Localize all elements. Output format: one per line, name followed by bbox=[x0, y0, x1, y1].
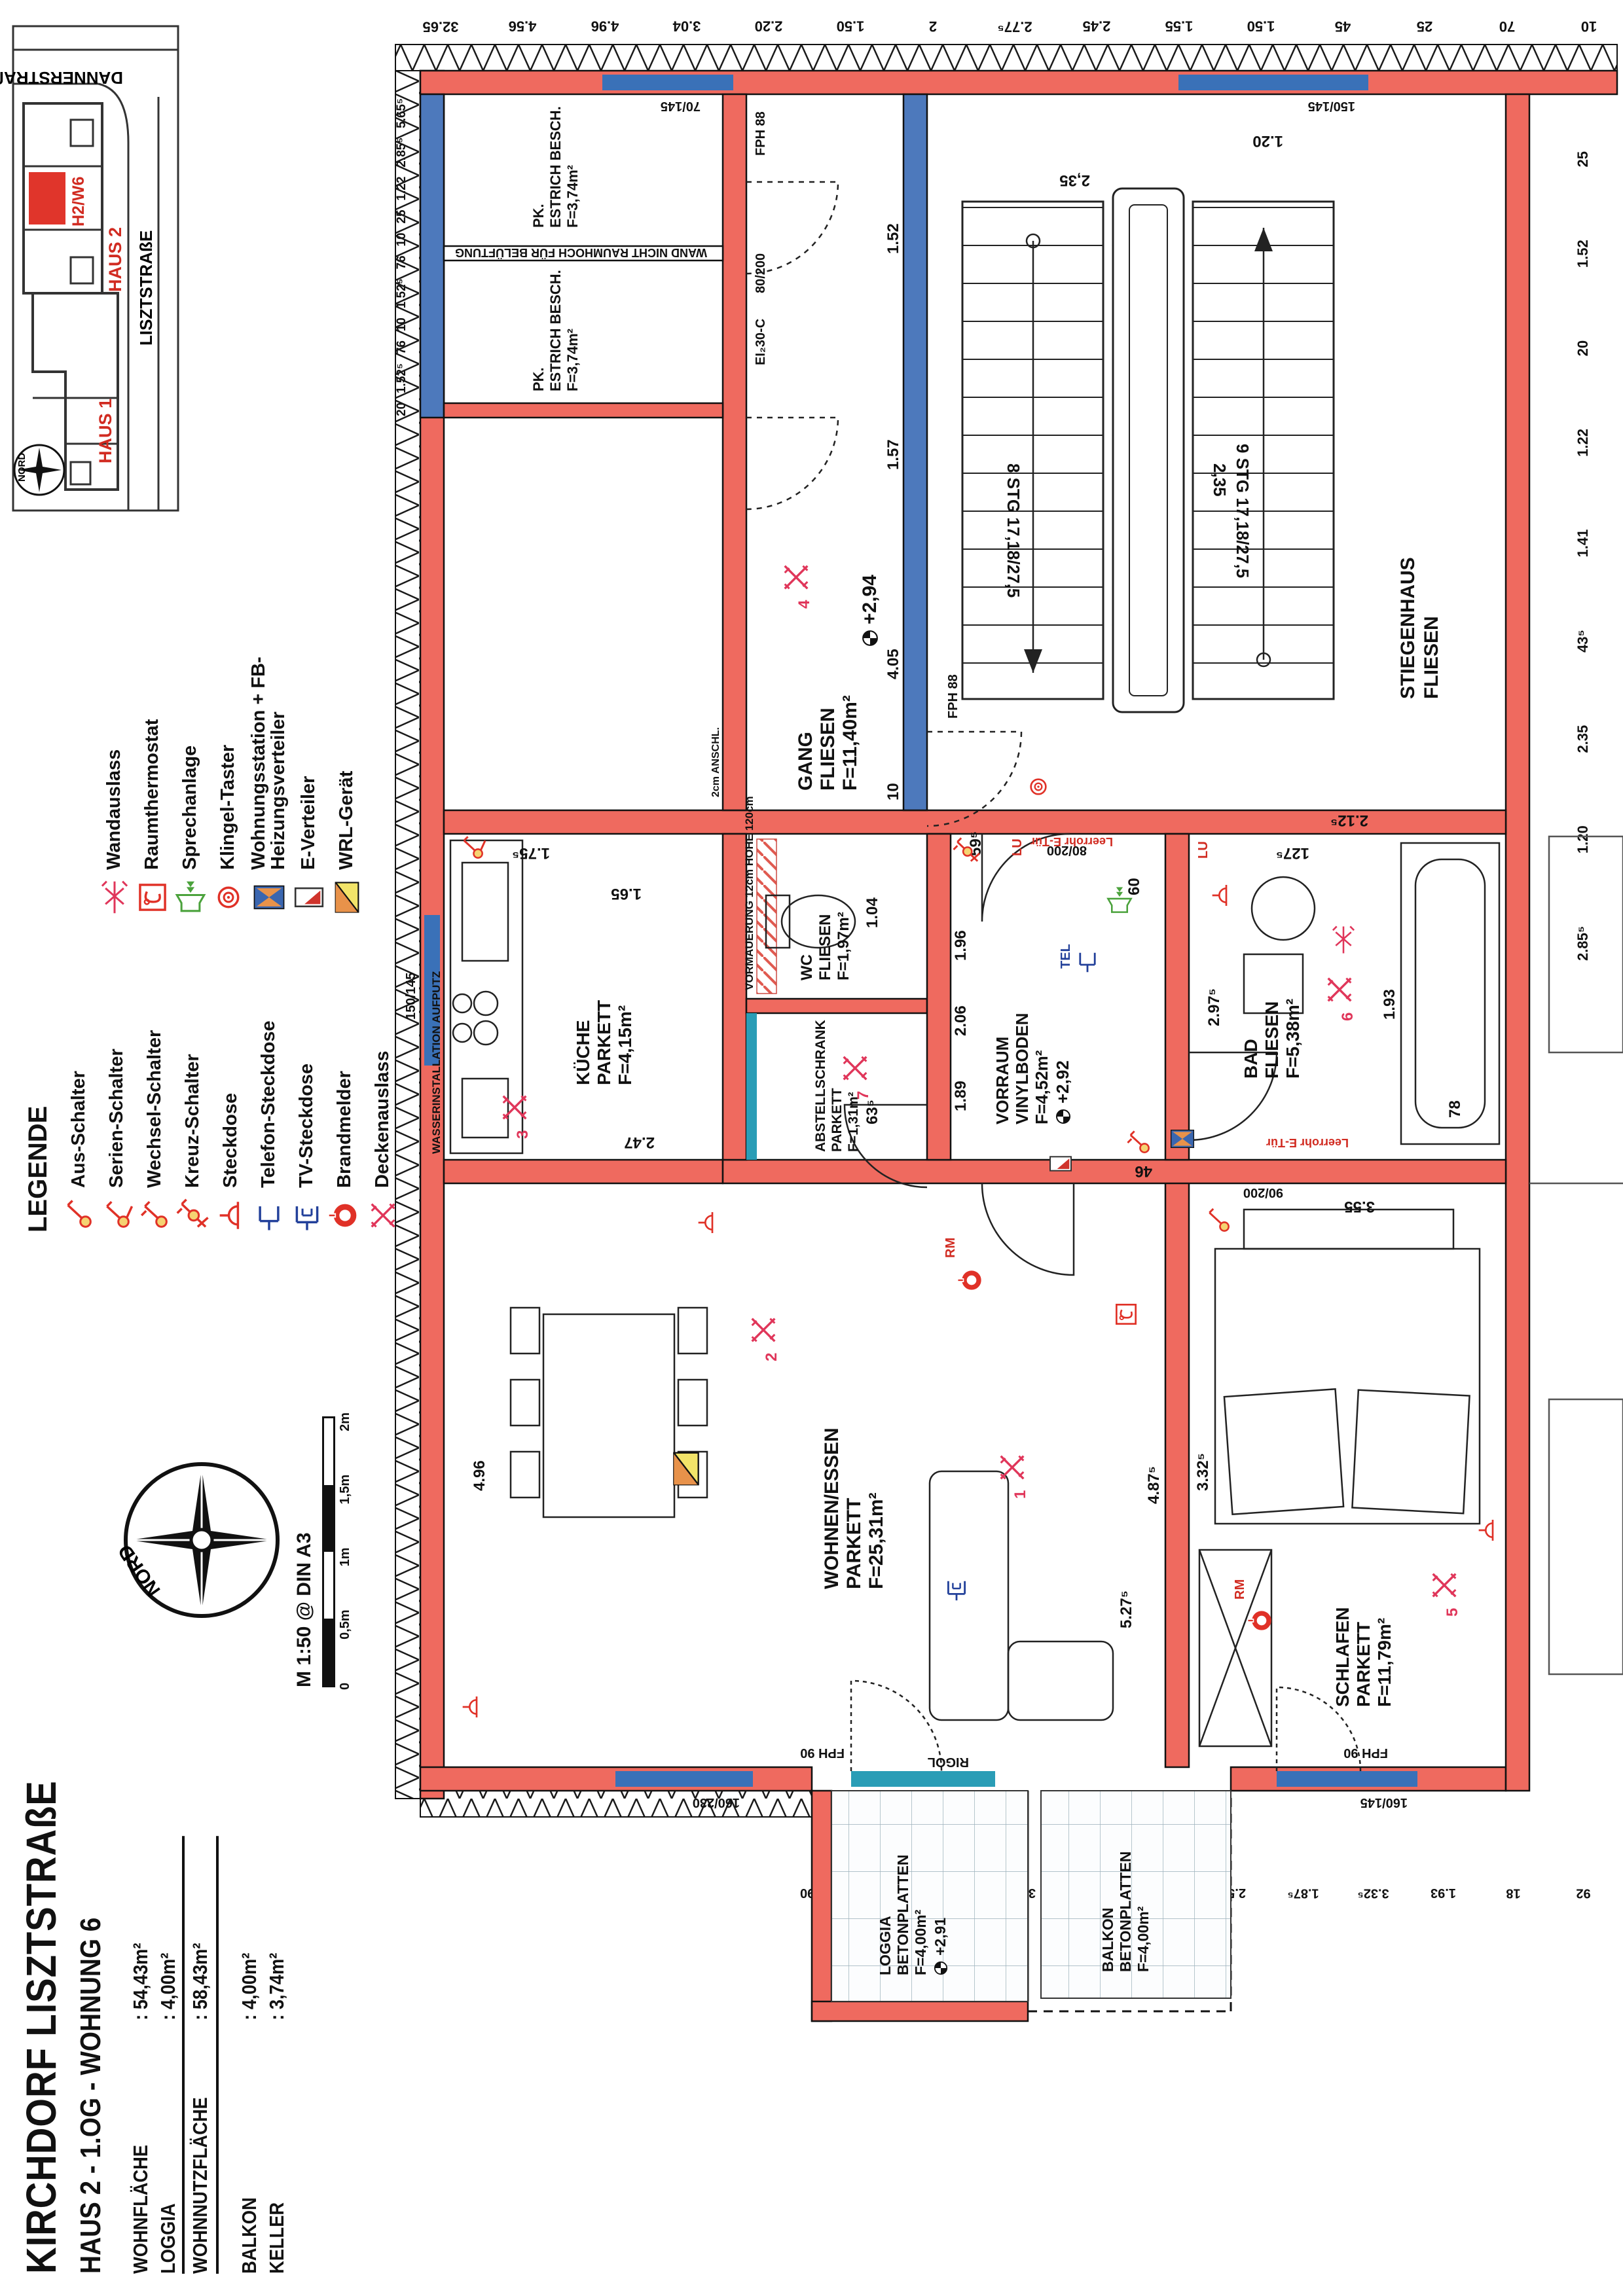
svg-text:2.97⁵: 2.97⁵ bbox=[1205, 988, 1223, 1026]
svg-text:1.57: 1.57 bbox=[884, 439, 902, 470]
svg-text:6: 6 bbox=[1339, 1013, 1357, 1021]
blue-wall bbox=[420, 94, 444, 418]
site-street-dannerstrasse: DANNERSTRAßE bbox=[0, 68, 123, 88]
ceiling-outlets: 1 2 3 4 5 6 7 bbox=[503, 566, 1461, 1617]
svg-text:4.87⁵: 4.87⁵ bbox=[1145, 1466, 1163, 1504]
svg-text:90/200: 90/200 bbox=[1243, 1185, 1283, 1200]
socket-icon bbox=[1479, 1520, 1493, 1541]
insulation-left-upper bbox=[420, 1791, 812, 1817]
svg-text:BALKON: BALKON bbox=[1099, 1908, 1116, 1972]
svg-text:GANG: GANG bbox=[795, 732, 816, 791]
socket-icon bbox=[699, 1212, 712, 1233]
room-label-kueche: KÜCHE PARKETT F=4,15m² bbox=[573, 1000, 635, 1085]
svg-text:RM: RM bbox=[943, 1238, 958, 1258]
svg-text:3: 3 bbox=[514, 1130, 532, 1139]
svg-text:2.47: 2.47 bbox=[624, 1134, 655, 1151]
svg-text:TEL: TEL bbox=[1059, 944, 1073, 969]
svg-text:WOHNEN/ESSEN: WOHNEN/ESSEN bbox=[821, 1427, 843, 1589]
svg-text:STIEGENHAUS: STIEGENHAUS bbox=[1397, 557, 1419, 699]
site-label-haus2: HAUS 2 bbox=[105, 227, 125, 292]
svg-text:FPH 90: FPH 90 bbox=[800, 1746, 845, 1760]
svg-text:1.89: 1.89 bbox=[952, 1081, 970, 1111]
bathtub bbox=[1401, 843, 1499, 1144]
site-haus2 bbox=[24, 103, 102, 293]
room-label-wohnen: WOHNEN/ESSEN PARKETT F=25,31m² bbox=[821, 1427, 887, 1589]
svg-text:PARKETT: PARKETT bbox=[594, 1000, 614, 1085]
svg-text:46: 46 bbox=[1135, 1162, 1152, 1180]
site-unit-h2w6 bbox=[29, 172, 65, 224]
svg-text:BETONPLATTEN: BETONPLATTEN bbox=[1117, 1852, 1134, 1972]
svg-text:FPH 88: FPH 88 bbox=[946, 674, 960, 719]
room-label-vorraum: VORRAUM VINYLBODEN F=4,52m² +2,92 bbox=[993, 1013, 1072, 1124]
svg-text:1.96: 1.96 bbox=[952, 930, 970, 961]
svg-text:1.04: 1.04 bbox=[864, 897, 881, 928]
svg-text:+2,92: +2,92 bbox=[1053, 1060, 1072, 1103]
socket-icon bbox=[463, 1696, 477, 1717]
site-label-haus1: HAUS 1 bbox=[96, 399, 115, 463]
svg-text:5: 5 bbox=[1444, 1608, 1461, 1617]
svg-text:PK.: PK. bbox=[530, 204, 547, 228]
tv-icon bbox=[948, 1581, 964, 1600]
room-label-abstell: ABSTELLSCHRANK PARKETT F=1,31m² bbox=[813, 1020, 861, 1152]
svg-text:10: 10 bbox=[884, 783, 902, 800]
svg-text:PARKETT: PARKETT bbox=[843, 1498, 865, 1589]
svg-text:KÜCHE: KÜCHE bbox=[573, 1020, 593, 1085]
svg-text:F=5,38m²: F=5,38m² bbox=[1283, 999, 1303, 1079]
everteiler-icon bbox=[1050, 1157, 1071, 1170]
door-balkon bbox=[1277, 1771, 1417, 1787]
window-stairwell bbox=[1178, 75, 1368, 90]
svg-text:4.96: 4.96 bbox=[471, 1460, 488, 1491]
svg-text:150/145: 150/145 bbox=[1308, 99, 1355, 113]
note-wand: WAND NICHT RAUMHOCH FÜR BELÜFTUNG bbox=[455, 246, 707, 259]
svg-text:3.55: 3.55 bbox=[1344, 1198, 1375, 1215]
drawing-sheet: KIRCHDORF LISZTSTRAßE HAUS 2 - 1.OG - WO… bbox=[0, 0, 1623, 2296]
room-label-bad: BAD FLIESEN F=5,38m² bbox=[1241, 999, 1303, 1079]
svg-text:F=1,97m²: F=1,97m² bbox=[835, 912, 852, 980]
svg-text:4.05: 4.05 bbox=[884, 649, 902, 679]
svg-text:F=1,31m²: F=1,31m² bbox=[846, 1092, 861, 1152]
svg-text:F=11,40m²: F=11,40m² bbox=[839, 695, 861, 791]
svg-text:F=11,79m²: F=11,79m² bbox=[1374, 1618, 1395, 1707]
svg-text:FLIESEN: FLIESEN bbox=[817, 708, 839, 791]
svg-text:F=3,74m²: F=3,74m² bbox=[564, 165, 581, 228]
room-label-stiegenhaus: STIEGENHAUS FLIESEN bbox=[1397, 557, 1442, 699]
level-marker-icon bbox=[863, 631, 877, 645]
site-label-h2w6: H2/W6 bbox=[69, 177, 88, 226]
klingel-icon bbox=[1031, 780, 1046, 795]
switch-icon bbox=[1209, 1209, 1228, 1231]
dining-table bbox=[511, 1308, 707, 1517]
svg-text:+2,94: +2,94 bbox=[859, 575, 881, 624]
level-marker-icon bbox=[935, 1962, 947, 1974]
svg-text:VINYLBODEN: VINYLBODEN bbox=[1012, 1013, 1032, 1124]
neighbour-flat bbox=[1529, 836, 1623, 1674]
svg-text:1.75⁵: 1.75⁵ bbox=[512, 844, 550, 862]
svg-text:LU: LU bbox=[1196, 841, 1211, 859]
svg-text:BETONPLATTEN: BETONPLATTEN bbox=[894, 1855, 911, 1975]
svg-text:F=25,31m²: F=25,31m² bbox=[866, 1492, 887, 1589]
svg-text:2.12⁵: 2.12⁵ bbox=[1330, 812, 1368, 829]
svg-text:1.52: 1.52 bbox=[884, 223, 902, 254]
svg-text:BAD: BAD bbox=[1241, 1039, 1261, 1079]
svg-text:EI₂30-C: EI₂30-C bbox=[754, 319, 768, 365]
svg-text:60: 60 bbox=[1125, 878, 1143, 895]
room-label-pk2: PK. ESTRICH BESCH. F=3,74m² bbox=[530, 106, 581, 228]
svg-text:FPH 90: FPH 90 bbox=[1343, 1746, 1388, 1760]
svg-text:1.65: 1.65 bbox=[611, 885, 642, 903]
svg-text:8 STG 17,18/27,5: 8 STG 17,18/27,5 bbox=[1004, 463, 1023, 598]
site-plan: DANNERSTRAßE LISZTSTRAßE HAUS 2 H2/W6 HA… bbox=[0, 26, 178, 511]
teal-band bbox=[746, 1013, 757, 1160]
svg-text:4: 4 bbox=[795, 600, 813, 609]
note-wasser: WASSERINSTALLATION AUFPUTZ bbox=[430, 971, 443, 1154]
raumthermostat-icon bbox=[1116, 1304, 1135, 1323]
svg-text:ABSTELLSCHRANK: ABSTELLSCHRANK bbox=[813, 1020, 828, 1152]
svg-text:PK.: PK. bbox=[530, 367, 547, 391]
svg-text:70/145: 70/145 bbox=[661, 99, 701, 113]
svg-text:F=4,15m²: F=4,15m² bbox=[615, 1005, 635, 1085]
svg-text:2: 2 bbox=[763, 1353, 780, 1361]
svg-text:160/230: 160/230 bbox=[693, 1795, 740, 1810]
svg-text:1: 1 bbox=[1012, 1490, 1029, 1499]
insulation-top bbox=[395, 71, 420, 1799]
svg-text:FPH 88: FPH 88 bbox=[754, 111, 768, 156]
svg-text:F=3,74m²: F=3,74m² bbox=[564, 329, 581, 391]
site-compass-label: NORD bbox=[16, 453, 27, 482]
svg-text:9 STG 17,18/27,5: 9 STG 17,18/27,5 bbox=[1233, 444, 1252, 578]
stairwell bbox=[962, 188, 1334, 712]
note-anschl: 2cm ANSCHL. bbox=[710, 727, 721, 797]
bed bbox=[1215, 1210, 1480, 1524]
svg-text:150/145: 150/145 bbox=[404, 973, 418, 1020]
switch-icon bbox=[1127, 1131, 1148, 1152]
svg-text:LOGGIA: LOGGIA bbox=[877, 1916, 894, 1975]
svg-text:FLIESEN: FLIESEN bbox=[1421, 616, 1442, 699]
svg-text:SCHLAFEN: SCHLAFEN bbox=[1332, 1607, 1353, 1707]
svg-text:160/145: 160/145 bbox=[1360, 1795, 1408, 1810]
note-leerrohr-2: Leerrohr E-Tür bbox=[1266, 1136, 1349, 1149]
svg-text:78: 78 bbox=[1446, 1100, 1464, 1118]
washbasin bbox=[1244, 877, 1315, 1013]
blue-wall-stair bbox=[903, 94, 927, 810]
note-vormauerung: VORMAUERUNG 12cm HOHE 120cm bbox=[743, 796, 756, 990]
svg-text:PARKETT: PARKETT bbox=[1353, 1622, 1374, 1707]
socket-icon bbox=[1213, 885, 1226, 906]
room-label-pk1: PK. ESTRICH BESCH. F=3,74m² bbox=[530, 270, 581, 391]
kitchen-counter bbox=[450, 840, 522, 1153]
room-label-schlafen: SCHLAFEN PARKETT F=11,79m² bbox=[1332, 1607, 1395, 1707]
svg-text:ESTRICH BESCH.: ESTRICH BESCH. bbox=[547, 106, 564, 228]
window-wohnen bbox=[615, 1771, 753, 1787]
brandmelder-icon bbox=[958, 1273, 979, 1287]
insulation-right bbox=[395, 45, 1617, 71]
telefon-icon bbox=[1080, 953, 1095, 972]
svg-text:2,35: 2,35 bbox=[1210, 463, 1230, 497]
svg-text:F=4,00m²: F=4,00m² bbox=[1135, 1906, 1152, 1972]
svg-text:2.06: 2.06 bbox=[952, 1005, 970, 1036]
svg-text:3.32⁵: 3.32⁵ bbox=[1194, 1453, 1212, 1491]
svg-text:127⁵: 127⁵ bbox=[1276, 844, 1309, 862]
svg-text:PARKETT: PARKETT bbox=[830, 1088, 845, 1152]
svg-text:1.93: 1.93 bbox=[1381, 989, 1398, 1020]
svg-text:F=4,52m²: F=4,52m² bbox=[1032, 1050, 1051, 1124]
svg-text:80/200: 80/200 bbox=[754, 253, 768, 293]
svg-text:63⁵: 63⁵ bbox=[864, 1100, 881, 1124]
svg-text:F=4,00m²: F=4,00m² bbox=[912, 1909, 929, 1975]
svg-text:FLIESEN: FLIESEN bbox=[816, 914, 834, 980]
svg-text:ESTRICH BESCH.: ESTRICH BESCH. bbox=[547, 270, 564, 391]
wrl-icon bbox=[674, 1453, 698, 1485]
svg-text:5.27⁵: 5.27⁵ bbox=[1118, 1590, 1135, 1628]
svg-text:7: 7 bbox=[854, 1091, 872, 1100]
svg-text:1.20: 1.20 bbox=[1252, 132, 1283, 150]
svg-text:80/200: 80/200 bbox=[1047, 843, 1087, 857]
rotated-canvas: KIRCHDORF LISZTSTRAßE HAUS 2 - 1.OG - WO… bbox=[0, 0, 1623, 2296]
window-right-upper bbox=[602, 75, 733, 90]
svg-text:WC: WC bbox=[798, 954, 816, 980]
svg-text:FLIESEN: FLIESEN bbox=[1262, 1001, 1282, 1079]
wohnungsstation-icon bbox=[1171, 1130, 1194, 1148]
brandmelder-icon bbox=[1248, 1613, 1269, 1628]
svg-text:VORRAUM: VORRAUM bbox=[993, 1037, 1012, 1124]
note-rigol: RIGOL bbox=[928, 1755, 969, 1769]
floor-plan: DANNERSTRAßE LISZTSTRAßE HAUS 2 H2/W6 HA… bbox=[0, 0, 1623, 2296]
svg-text:LU: LU bbox=[1010, 838, 1025, 856]
door-loggia bbox=[851, 1771, 995, 1787]
svg-text:+2,91: +2,91 bbox=[932, 1918, 949, 1956]
svg-text:RM: RM bbox=[1233, 1579, 1247, 1600]
level-marker-icon bbox=[1057, 1110, 1070, 1123]
svg-text:2,35: 2,35 bbox=[1059, 171, 1090, 189]
wandauslass-icon bbox=[1333, 926, 1354, 953]
site-street-lisztstrasse: LISZTSTRAßE bbox=[136, 230, 156, 346]
